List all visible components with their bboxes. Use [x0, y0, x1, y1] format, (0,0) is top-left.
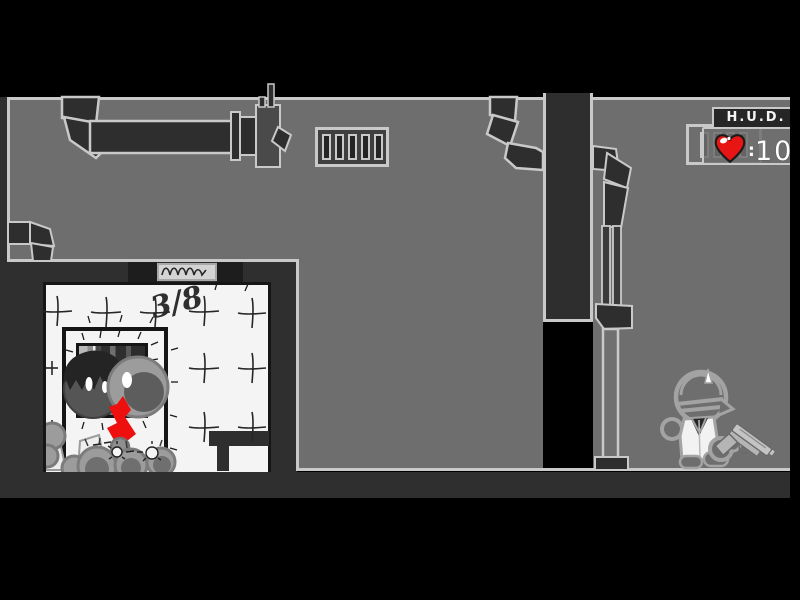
floor-line [296, 468, 790, 471]
center-wall-edge-line [296, 259, 299, 471]
room-sign-board [209, 431, 269, 446]
hud-health-separator: : [748, 141, 755, 161]
ceiling-line [7, 97, 791, 100]
vent-slat [335, 134, 344, 160]
hud-title: H.U.D. [726, 110, 785, 125]
vent-slat [361, 134, 370, 160]
room-sign-post [217, 446, 229, 471]
wall-vent-grate [315, 127, 389, 167]
hud-title-bar: H.U.D. [712, 107, 800, 129]
screen-edge-mask [790, 0, 800, 600]
dark-pillar [543, 93, 593, 322]
vent-slat [322, 134, 331, 160]
game-viewport[interactable]: 3/8 [0, 0, 800, 600]
vent-slat [348, 134, 357, 160]
hud-health-panel: : 100 [702, 127, 798, 165]
left-wall-line [7, 97, 10, 262]
barred-window [76, 343, 148, 418]
heart-icon [712, 131, 748, 165]
vent-slat [374, 134, 383, 160]
plaque-flank-left [128, 262, 157, 282]
upper-left-wall [8, 100, 297, 259]
under-floor-band [0, 472, 790, 498]
plaque-flank-right [217, 262, 243, 282]
